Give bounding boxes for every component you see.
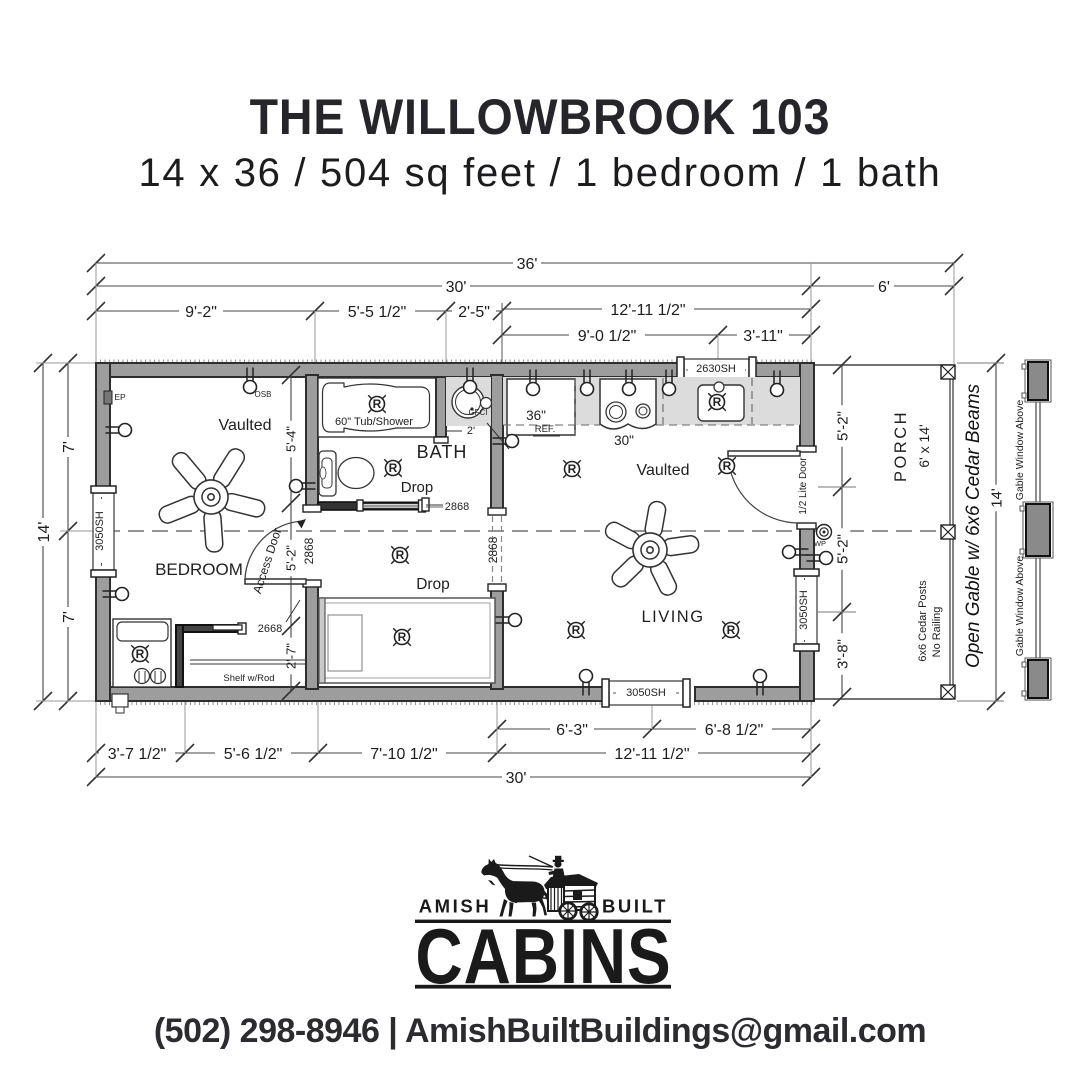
svg-text:6' x 14': 6' x 14' bbox=[916, 424, 932, 467]
svg-text:7'-10 1/2": 7'-10 1/2" bbox=[370, 746, 437, 763]
svg-text:WP: WP bbox=[814, 539, 826, 548]
svg-text:5'-2": 5'-2" bbox=[834, 411, 851, 441]
svg-text:OSB: OSB bbox=[255, 390, 272, 399]
svg-text:1/2 Lite Door: 1/2 Lite Door bbox=[798, 457, 809, 515]
svg-text:No Railing: No Railing bbox=[931, 607, 943, 658]
svg-text:BEDROOM: BEDROOM bbox=[155, 560, 243, 579]
svg-text:36': 36' bbox=[517, 256, 538, 273]
svg-text:3050SH: 3050SH bbox=[798, 590, 810, 630]
svg-text:BATH: BATH bbox=[417, 442, 468, 462]
svg-text:Vaulted: Vaulted bbox=[636, 462, 689, 479]
svg-text:R: R bbox=[572, 623, 581, 637]
svg-text:30': 30' bbox=[446, 279, 467, 296]
svg-text:6x6 Cedar Posts: 6x6 Cedar Posts bbox=[917, 580, 929, 662]
svg-text:36": 36" bbox=[526, 408, 546, 423]
svg-text:PORCH: PORCH bbox=[892, 410, 910, 482]
svg-text:R: R bbox=[398, 630, 407, 644]
svg-text:3'-8": 3'-8" bbox=[834, 639, 851, 669]
svg-text:30': 30' bbox=[506, 770, 527, 787]
svg-text:60" Tub/Shower: 60" Tub/Shower bbox=[335, 416, 413, 428]
svg-text:9'-2": 9'-2" bbox=[185, 304, 217, 321]
svg-text:7': 7' bbox=[61, 611, 78, 623]
svg-text:R: R bbox=[396, 548, 405, 562]
svg-text:R: R bbox=[136, 647, 145, 661]
svg-text:3050SH: 3050SH bbox=[626, 687, 666, 699]
svg-text:R: R bbox=[568, 462, 577, 476]
svg-text:R: R bbox=[727, 623, 736, 637]
svg-text:12'-11 1/2": 12'-11 1/2" bbox=[614, 746, 689, 763]
svg-text:2868: 2868 bbox=[486, 536, 500, 563]
svg-text:R: R bbox=[389, 461, 398, 475]
svg-text:Access Door: Access Door bbox=[250, 526, 284, 595]
svg-text:Gable Window Above: Gable Window Above bbox=[1014, 556, 1026, 657]
svg-text:2': 2' bbox=[467, 425, 475, 437]
svg-text:GFCI: GFCI bbox=[468, 408, 487, 417]
svg-text:3'-7 1/2": 3'-7 1/2" bbox=[108, 746, 167, 763]
svg-text:6'-8 1/2": 6'-8 1/2" bbox=[705, 722, 764, 739]
svg-text:14': 14' bbox=[36, 522, 53, 543]
svg-text:7': 7' bbox=[61, 441, 78, 453]
svg-text:9'-0 1/2": 9'-0 1/2" bbox=[578, 328, 637, 345]
svg-text:Gable Window Above: Gable Window Above bbox=[1014, 400, 1026, 501]
svg-text:5'-4": 5'-4" bbox=[284, 426, 299, 452]
svg-text:R: R bbox=[723, 459, 732, 473]
svg-text:5'-5 1/2": 5'-5 1/2" bbox=[348, 304, 407, 321]
svg-text:3'-11": 3'-11" bbox=[743, 328, 783, 345]
svg-text:2868: 2868 bbox=[302, 537, 316, 564]
svg-text:2668: 2668 bbox=[258, 623, 282, 635]
svg-text:LIVING: LIVING bbox=[641, 608, 704, 626]
svg-text:R: R bbox=[373, 397, 382, 411]
svg-text:5'-6 1/2": 5'-6 1/2" bbox=[224, 746, 283, 763]
svg-text:2'-5": 2'-5" bbox=[458, 304, 490, 321]
svg-text:Shelf w/Rod: Shelf w/Rod bbox=[223, 673, 274, 684]
svg-text:Drop: Drop bbox=[416, 576, 450, 593]
svg-text:5'-2": 5'-2" bbox=[284, 545, 299, 571]
svg-text:Open Gable w/ 6x6 Cedar Beams: Open Gable w/ 6x6 Cedar Beams bbox=[963, 383, 984, 668]
svg-text:30": 30" bbox=[614, 433, 634, 448]
svg-text:2630SH: 2630SH bbox=[696, 363, 736, 375]
svg-text:Vaulted: Vaulted bbox=[218, 417, 271, 434]
svg-text:EP: EP bbox=[114, 392, 126, 402]
svg-text:2868: 2868 bbox=[445, 501, 469, 513]
svg-text:3050SH: 3050SH bbox=[94, 511, 106, 551]
svg-text:REF.: REF. bbox=[535, 424, 556, 435]
svg-text:Drop: Drop bbox=[401, 479, 434, 496]
svg-text:5'-2": 5'-2" bbox=[834, 534, 851, 564]
svg-text:6': 6' bbox=[878, 279, 890, 296]
svg-text:R: R bbox=[713, 395, 722, 409]
svg-text:2'-7": 2'-7" bbox=[284, 643, 299, 669]
svg-text:14': 14' bbox=[988, 488, 1005, 508]
svg-text:6'-3": 6'-3" bbox=[556, 722, 588, 739]
svg-text:12'-11 1/2": 12'-11 1/2" bbox=[610, 302, 685, 319]
